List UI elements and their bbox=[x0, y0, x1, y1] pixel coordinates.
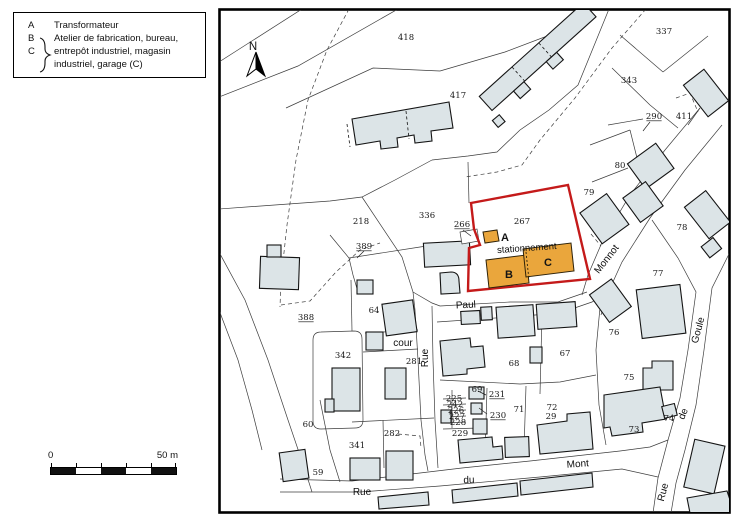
parcel-label: 417 bbox=[450, 91, 466, 101]
parcel-label: 68 bbox=[509, 359, 520, 369]
parcel-label: 80 bbox=[615, 161, 626, 171]
parcel-label: 336 bbox=[419, 211, 435, 221]
parcel-label: 75 bbox=[624, 373, 635, 383]
building-letter-label: A bbox=[501, 232, 509, 244]
building-letter-label: B bbox=[505, 269, 513, 281]
parcel-label: 73 bbox=[629, 425, 640, 435]
parcel-label: 76 bbox=[609, 328, 620, 338]
parcel-label: 228 bbox=[450, 418, 466, 428]
street-label: Mont bbox=[566, 458, 589, 471]
parcel-label: 64 bbox=[369, 306, 380, 316]
parcel-label: 341 bbox=[349, 441, 365, 451]
parcel-label: 342 bbox=[335, 351, 351, 361]
parcel-label: 60 bbox=[303, 420, 314, 430]
parcel-label: 282 bbox=[384, 429, 400, 439]
parcel-label: 229 bbox=[452, 429, 468, 439]
parcel-label: 343 bbox=[621, 76, 637, 86]
street-label: Rue bbox=[353, 487, 372, 498]
street-label: cour bbox=[393, 338, 413, 349]
street-label: Rue bbox=[420, 348, 431, 367]
north-label: N bbox=[249, 41, 257, 53]
parcel-label: 67 bbox=[560, 349, 571, 359]
parcel-label: 69 bbox=[472, 385, 483, 395]
parcel-label: 71 bbox=[514, 405, 525, 415]
parcel-label: 267 bbox=[514, 217, 530, 227]
parcel-label: 29 bbox=[546, 412, 557, 422]
street-label: Paul bbox=[456, 299, 477, 311]
parcel-label: 77 bbox=[653, 269, 664, 279]
parcel-label: 74 bbox=[664, 414, 675, 424]
street-label: du bbox=[463, 475, 475, 486]
building-a-transformer bbox=[483, 230, 499, 243]
building-letter-label: C bbox=[544, 257, 552, 269]
parcel-label: 218 bbox=[353, 217, 369, 227]
parcel-label: 59 bbox=[313, 468, 324, 478]
cadastral-map: N418417337343290411807978777675747372297… bbox=[0, 0, 738, 522]
parcel-label: 418 bbox=[398, 33, 414, 43]
parcel-label: 78 bbox=[677, 223, 688, 233]
parcel-label: 79 bbox=[584, 188, 595, 198]
parcel-label: 411 bbox=[676, 112, 692, 122]
parcel-label: 337 bbox=[656, 27, 672, 37]
page: { "legend": { "items": [ {"key":"A","tex… bbox=[0, 0, 738, 522]
